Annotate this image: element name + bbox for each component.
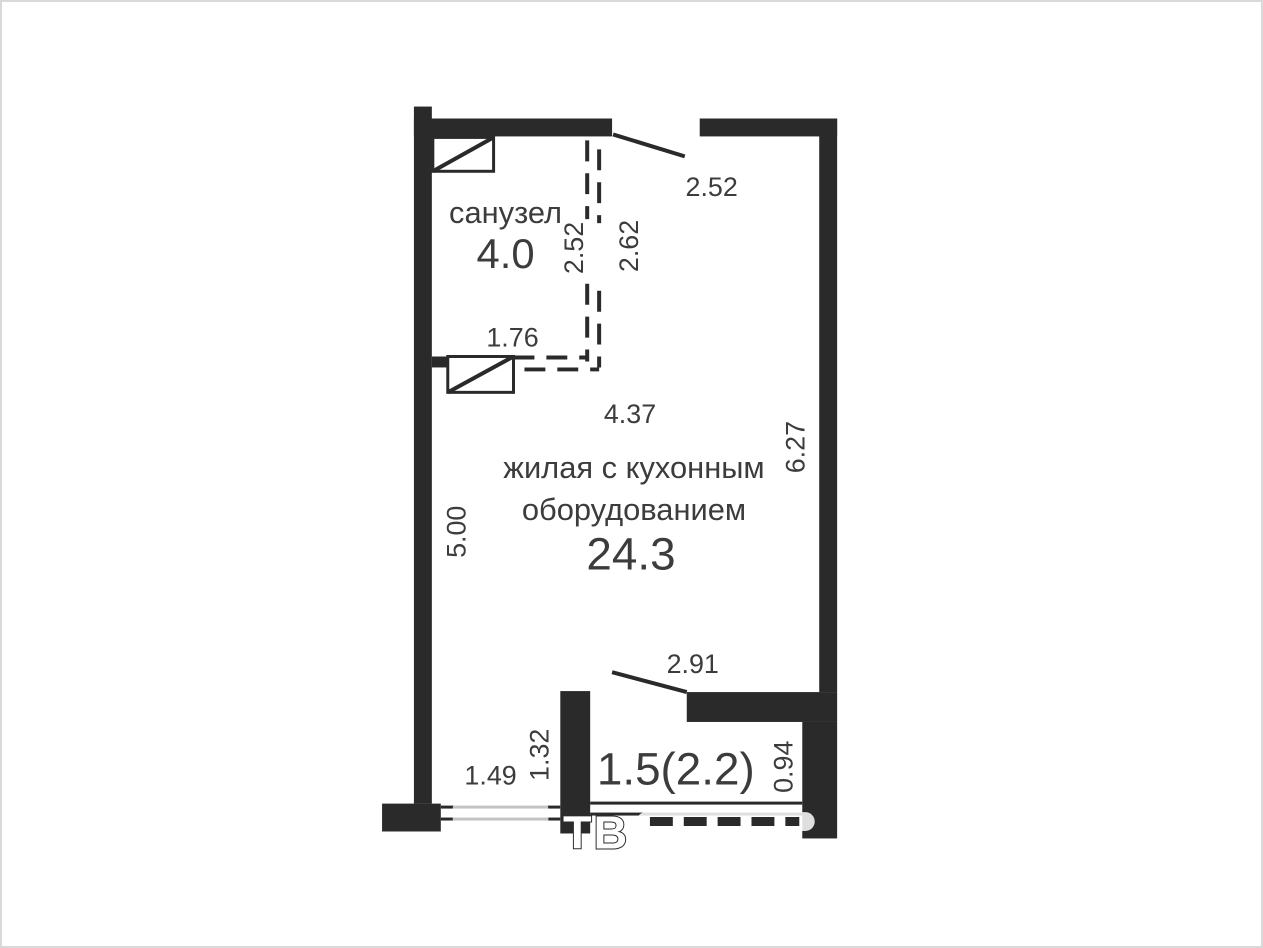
wall-left (414, 107, 432, 804)
wall-top-left-segment (414, 119, 612, 137)
dim-living-length-right: 6.27 (780, 421, 810, 473)
dim-bath-inner-wall: 2.62 (614, 220, 644, 272)
wall-vent-stub (432, 356, 448, 367)
dim-bath-partition-length: 2.52 (559, 222, 589, 274)
dim-window-width: 1.49 (464, 761, 516, 791)
wall-bottom-left-corner (382, 804, 441, 832)
vent-duct-middle (448, 356, 514, 392)
balcony-area: 1.5(2.2) (597, 744, 755, 795)
wall-balcony-top (687, 692, 837, 722)
dim-balcony-section-width: 2.91 (667, 649, 719, 679)
dim-entry-opening: 2.52 (686, 172, 738, 202)
dim-balcony-divider-wall: 1.32 (524, 729, 554, 781)
wall-right (819, 119, 837, 693)
dim-living-length-left: 5.00 (442, 506, 472, 558)
living-area: 24.3 (586, 529, 675, 580)
floorplan-svg: санузел 4.0 жилая с кухонным оборудовани… (2, 2, 1261, 946)
balcony-glazing-outer-line (590, 802, 802, 805)
living-label-line1: жилая с кухонным (503, 450, 764, 485)
dim-balcony-depth: 0.94 (768, 741, 798, 793)
floorplan-canvas: санузел 4.0 жилая с кухонным оборудовани… (0, 0, 1263, 948)
bathroom-label: санузел (449, 195, 562, 230)
watermark-blob (453, 799, 549, 831)
wall-top-right-segment (700, 119, 837, 137)
leader-entry-opening (613, 134, 685, 156)
watermark: ТВ (453, 799, 806, 859)
living-label-line2: оборудованием (522, 492, 746, 527)
dim-living-width: 4.37 (604, 399, 656, 429)
bathroom-area: 4.0 (476, 230, 534, 277)
watermark-logo-text: ТВ (563, 806, 629, 858)
vent-duct-top (433, 137, 494, 171)
dim-partition-width: 1.76 (486, 323, 538, 353)
